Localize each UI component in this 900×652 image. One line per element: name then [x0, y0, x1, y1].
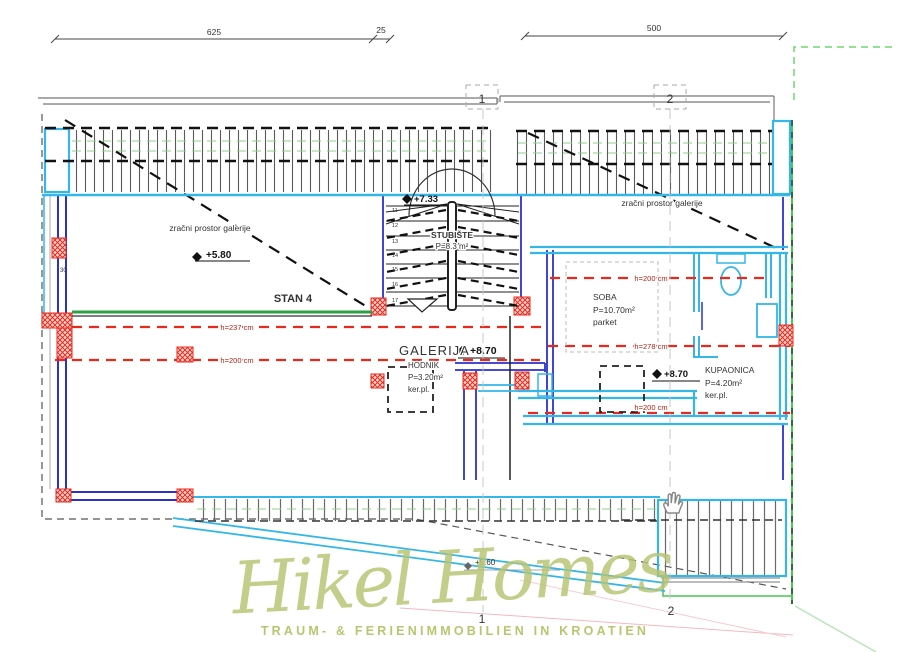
wall-dim-30: 30	[60, 268, 67, 274]
column	[177, 489, 193, 502]
dimension-lines: 625 25 500	[51, 23, 787, 43]
wall-south-b	[523, 416, 788, 424]
step-number: 15	[392, 267, 398, 273]
gallery-label: GALERIJA	[399, 343, 470, 358]
step-number: 13	[392, 239, 398, 245]
height-label: h=200 cm	[220, 356, 253, 365]
void-label-right: zračni prostor galerije	[621, 198, 703, 208]
wall-hodnik	[455, 363, 545, 372]
roof-hatch-right	[516, 121, 790, 194]
watermark-tagline: TRAUM- & FERIENIMMOBILIEN IN KROATIEN	[261, 624, 649, 638]
dim-value-500: 500	[647, 23, 661, 33]
building-outline-top	[38, 96, 774, 121]
dim-value-625: 625	[207, 27, 221, 37]
column	[779, 325, 793, 346]
step-number: 16	[392, 282, 398, 288]
kupaonica-name: KUPAONICA	[705, 365, 755, 375]
hodnik-floor: ker.pl.	[408, 385, 429, 394]
soba-name: SOBA	[593, 292, 617, 302]
height-label: h=278 cm	[634, 342, 667, 351]
wall-bath-right	[766, 254, 771, 298]
block-bottom-lines	[662, 578, 780, 582]
watermark-brand: Hikel Homes	[228, 524, 674, 631]
step-number: 11	[392, 208, 398, 214]
step-number: 17	[392, 298, 398, 304]
hand-shape	[664, 492, 683, 513]
level-text: +8.70	[664, 369, 688, 380]
gallery-railing	[72, 312, 372, 316]
cyan-cap-right	[773, 121, 790, 194]
level-text: +5.80	[206, 250, 232, 261]
stair-step-numbers: 11 12 13 14 15 16 17	[392, 208, 398, 304]
column	[371, 374, 384, 388]
column	[515, 372, 529, 389]
plot-line-green-dashed	[794, 47, 897, 100]
toilet-bowl	[721, 267, 741, 295]
toilet-tank	[717, 254, 745, 263]
hodnik-area: P=3.20m²	[408, 373, 443, 382]
watermark: Hikel Homes TRAUM- & FERIENIMMOBILIEN IN…	[228, 524, 674, 638]
apartment-label: STAN 4	[274, 293, 313, 305]
grid-marker-top-1: 1	[479, 92, 486, 106]
void-label-left: zračni prostor galerije	[169, 223, 251, 233]
dim-value-25: 25	[376, 25, 386, 35]
level-text: +7.33	[414, 194, 438, 205]
column	[57, 328, 72, 358]
wall-bottom-left	[58, 492, 192, 500]
roof-hatch-left	[45, 128, 494, 192]
terrace-strip	[195, 499, 658, 521]
floor-plan-drawing: 11 12 13 14 15 16 17 STUBIŠTE P=8.3 m² +…	[0, 0, 900, 652]
soba-area: P=10.70m²	[593, 305, 635, 315]
height-label: h=200 cm	[634, 274, 667, 283]
stair-room-name: STUBIŠTE	[431, 229, 473, 240]
column	[463, 373, 477, 389]
level-bath: +8.70	[652, 369, 700, 381]
green-diagonal-faint	[795, 606, 876, 652]
grid-marker-top-2: 2	[667, 92, 674, 106]
outline-left-band	[38, 98, 497, 104]
column	[42, 313, 72, 328]
soba-floor: parket	[593, 317, 617, 327]
hodnik-name: HODNIK	[408, 361, 440, 370]
kupaonica-floor: ker.pl.	[705, 390, 728, 400]
column	[371, 298, 386, 315]
column	[52, 238, 66, 258]
height-label: h=237 cm	[220, 323, 253, 332]
stair-room-area: P=8.3 m²	[436, 242, 469, 251]
terrace-hatch	[195, 499, 658, 521]
kupaonica-area: P=4.20m²	[705, 378, 742, 388]
cyan-duct	[538, 374, 552, 396]
wall-soba-top	[530, 247, 788, 253]
outline-right-band	[500, 96, 774, 121]
floor-plan-page: 11 12 13 14 15 16 17 STUBIŠTE P=8.3 m² +…	[0, 0, 900, 652]
height-label: h=200 cm	[634, 403, 667, 412]
stair-spine-wall	[448, 202, 456, 310]
level-void: +5.80	[192, 250, 250, 262]
wall-bath-left	[694, 254, 718, 358]
column	[177, 347, 193, 362]
hand-cursor-icon	[664, 492, 683, 513]
shower-tray	[757, 304, 777, 337]
step-number: 14	[392, 253, 398, 259]
step-number: 12	[392, 223, 398, 229]
column	[56, 489, 71, 502]
level-diamond	[652, 369, 662, 379]
